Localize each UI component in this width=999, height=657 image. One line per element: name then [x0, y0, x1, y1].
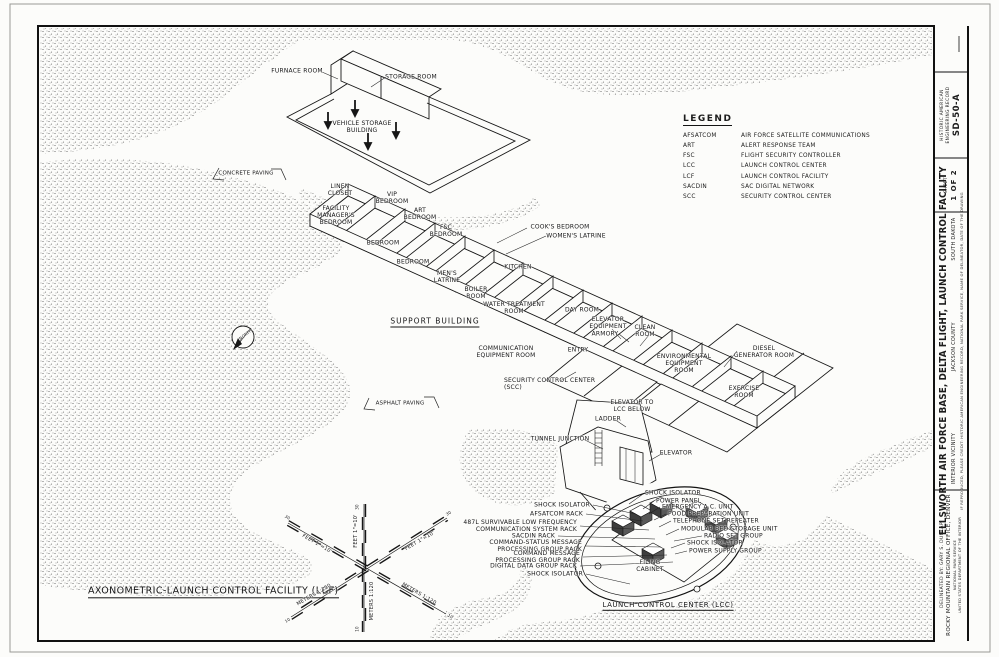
legend-item: AFSATCOMAIR FORCE SATELLITE COMMUNICATIO…: [683, 131, 933, 141]
drawing-label: FACILITY MANAGER'S BEDROOM: [317, 205, 355, 227]
sheet-number: 1 OF 2: [950, 169, 958, 200]
legend-abbr: SACDIN: [683, 182, 741, 192]
titleblock-delineator-cell: DELINEATED BY: GARY S. DUNLAP ROCKY MOUN…: [934, 490, 968, 640]
legend-abbr: LCC: [683, 161, 741, 171]
legend-meaning: LAUNCH CONTROL CENTER: [741, 161, 827, 171]
drawing-label: COOK'S BEDROOM: [530, 223, 589, 230]
haer-drawing-sheet: LEGEND AFSATCOMAIR FORCE SATELLITE COMMU…: [0, 0, 999, 657]
legend-abbr: LCF: [683, 172, 741, 182]
drawing-label: ENTRY: [568, 346, 588, 353]
drawing-label: LINEN CLOSET: [328, 183, 353, 197]
drawing-label: COMMUNICATION EQUIPMENT ROOM: [477, 345, 536, 359]
drawing-label: AFSATCOM RACK: [530, 510, 583, 517]
drawing-label: DIGITAL DATA GROUP RACK: [490, 562, 577, 569]
sheet-main-title: ELLSWORTH AIR FORCE BASE, DELTA FLIGHT, …: [938, 167, 949, 536]
drawing-label: SECURITY CONTROL CENTER (SCC): [504, 377, 595, 391]
drawing-label: SHOCK ISOLATOR: [534, 501, 590, 508]
record-number: SD-50-A: [952, 94, 962, 136]
drawing-label: WOMEN'S LATRINE: [546, 232, 605, 239]
vehicle-storage-building-drawing: [287, 51, 530, 193]
legend: LEGEND AFSATCOMAIR FORCE SATELLITE COMMU…: [683, 106, 933, 202]
drawing-label: ELEVATOR TO LCC BELOW: [610, 399, 653, 413]
drawing-label: EXERCISE ROOM: [729, 385, 760, 399]
regional-office: ROCKY MOUNTAIN REGIONAL OFFICE, DENVER: [946, 494, 952, 636]
legend-items: AFSATCOMAIR FORCE SATELLITE COMMUNICATIO…: [683, 131, 933, 202]
drawing-label: POWER SUPPLY GROUP: [689, 547, 762, 554]
drawing-label: ARMORY: [592, 330, 619, 337]
drawing-label: LADDER: [595, 415, 621, 422]
location-vicinity: INTERIOR VICINITY: [951, 433, 957, 485]
legend-item: SCCSECURITY CONTROL CENTER: [683, 192, 933, 202]
drawing-label: ELEVATOR EQUIPMENT: [589, 316, 626, 330]
drawing-label: SHOCK ISOLATOR: [527, 570, 583, 577]
drawing-label: METERS 1:120: [369, 582, 375, 621]
drawing-label: ELEVATOR: [660, 449, 692, 456]
drawing-label: MEN'S LATRINE: [434, 270, 460, 284]
legend-meaning: LAUNCH CONTROL FACILITY: [741, 172, 829, 182]
delineated-by: DELINEATED BY: GARY S. DUNLAP: [940, 522, 945, 608]
drawing-label: FSC BEDROOM: [430, 224, 463, 238]
drawing-label: TELEPHONE SET REPEATER: [673, 517, 759, 524]
legend-item: SACDINSAC DIGITAL NETWORK: [683, 182, 933, 192]
label-storage-room: STORAGE ROOM: [385, 73, 437, 80]
legend-meaning: ALERT RESPONSE TEAM: [741, 141, 816, 151]
drawing-label: 30: [356, 504, 361, 510]
label-asphalt-paving: ASPHALT PAVING: [376, 401, 425, 408]
legend-abbr: ART: [683, 141, 741, 151]
reproduction-credit: IF REPRODUCED, PLEASE CREDIT: HISTORIC A…: [959, 192, 964, 510]
drawing-label: DIESEL GENERATOR ROOM: [734, 345, 794, 359]
label-support-building: SUPPORT BUILDING: [390, 317, 479, 328]
label-vehicle-storage-building: VEHICLE STORAGE BUILDING: [333, 120, 392, 134]
label-furnace-room: FURNACE ROOM: [271, 67, 323, 74]
titleblock-title-cell: ELLSWORTH AIR FORCE BASE, DELTA FLIGHT, …: [934, 212, 968, 490]
drawing-label: 10: [356, 626, 361, 632]
location-state: SOUTH DAKOTA: [951, 218, 957, 261]
drawing-label: CLEAN ROOM: [635, 324, 656, 338]
legend-meaning: AIR FORCE SATELLITE COMMUNICATIONS: [741, 131, 870, 141]
legend-item: ARTALERT RESPONSE TEAM: [683, 141, 933, 151]
drawing-title: AXONOMETRIC-LAUNCH CONTROL FACILITY (LCF…: [88, 585, 339, 598]
legend-meaning: FLIGHT SECURITY CONTROLLER: [741, 151, 841, 161]
legend-item: FSCFLIGHT SECURITY CONTROLLER: [683, 151, 933, 161]
drawing-label: ENVIRONMENTAL EQUIPMENT ROOM: [657, 353, 711, 375]
legend-meaning: SECURITY CONTROL CENTER: [741, 192, 832, 202]
legend-abbr: SCC: [683, 192, 741, 202]
drawing-label: FEET 1"=10': [353, 514, 359, 547]
drawing-label: BEDROOM: [367, 239, 400, 246]
drawing-label: SHOCK ISOLATOR: [645, 489, 701, 496]
legend-item: LCFLAUNCH CONTROL FACILITY: [683, 172, 933, 182]
location-county: JACKSON COUNTY: [951, 322, 957, 371]
drawing-label: KITCHEN: [504, 263, 531, 270]
drawing-label: SHOCK ISOLATOR: [687, 539, 743, 546]
drawing-label: ART BEDROOM: [404, 207, 437, 221]
label-launch-control-center: LAUNCH CONTROL CENTER (LCC): [603, 601, 734, 611]
legend-meaning: SAC DIGITAL NETWORK: [741, 182, 814, 192]
agency-line2: UNITED STATES DEPARTMENT OF THE INTERIOR: [958, 517, 963, 613]
drawing-label: DAY ROOM: [565, 306, 599, 313]
drawing-label: 487L SURVIVABLE LOW FREQUENCY COMMUNICAT…: [463, 519, 577, 533]
drawing-label: FILING CABINET: [636, 559, 664, 573]
legend-abbr: FSC: [683, 151, 741, 161]
legend-title: LEGEND: [683, 114, 732, 126]
drawing-label: VIP BEDROOM: [376, 191, 409, 205]
drawing-label: BOILER ROOM: [464, 286, 487, 300]
drawing-label: WATER TREATMENT ROOM: [483, 301, 545, 315]
legend-abbr: AFSATCOM: [683, 131, 741, 141]
drawing-label: TUNNEL JUNCTION: [531, 435, 590, 442]
label-concrete-paving: CONCRETE PAVING: [218, 171, 273, 178]
legend-item: LCCLAUNCH CONTROL CENTER: [683, 161, 933, 171]
drawing-label: BEDROOM: [397, 258, 430, 265]
titleblock-record-cell: HISTORIC AMERICAN ENGINEERING RECORD SD-…: [934, 72, 968, 158]
